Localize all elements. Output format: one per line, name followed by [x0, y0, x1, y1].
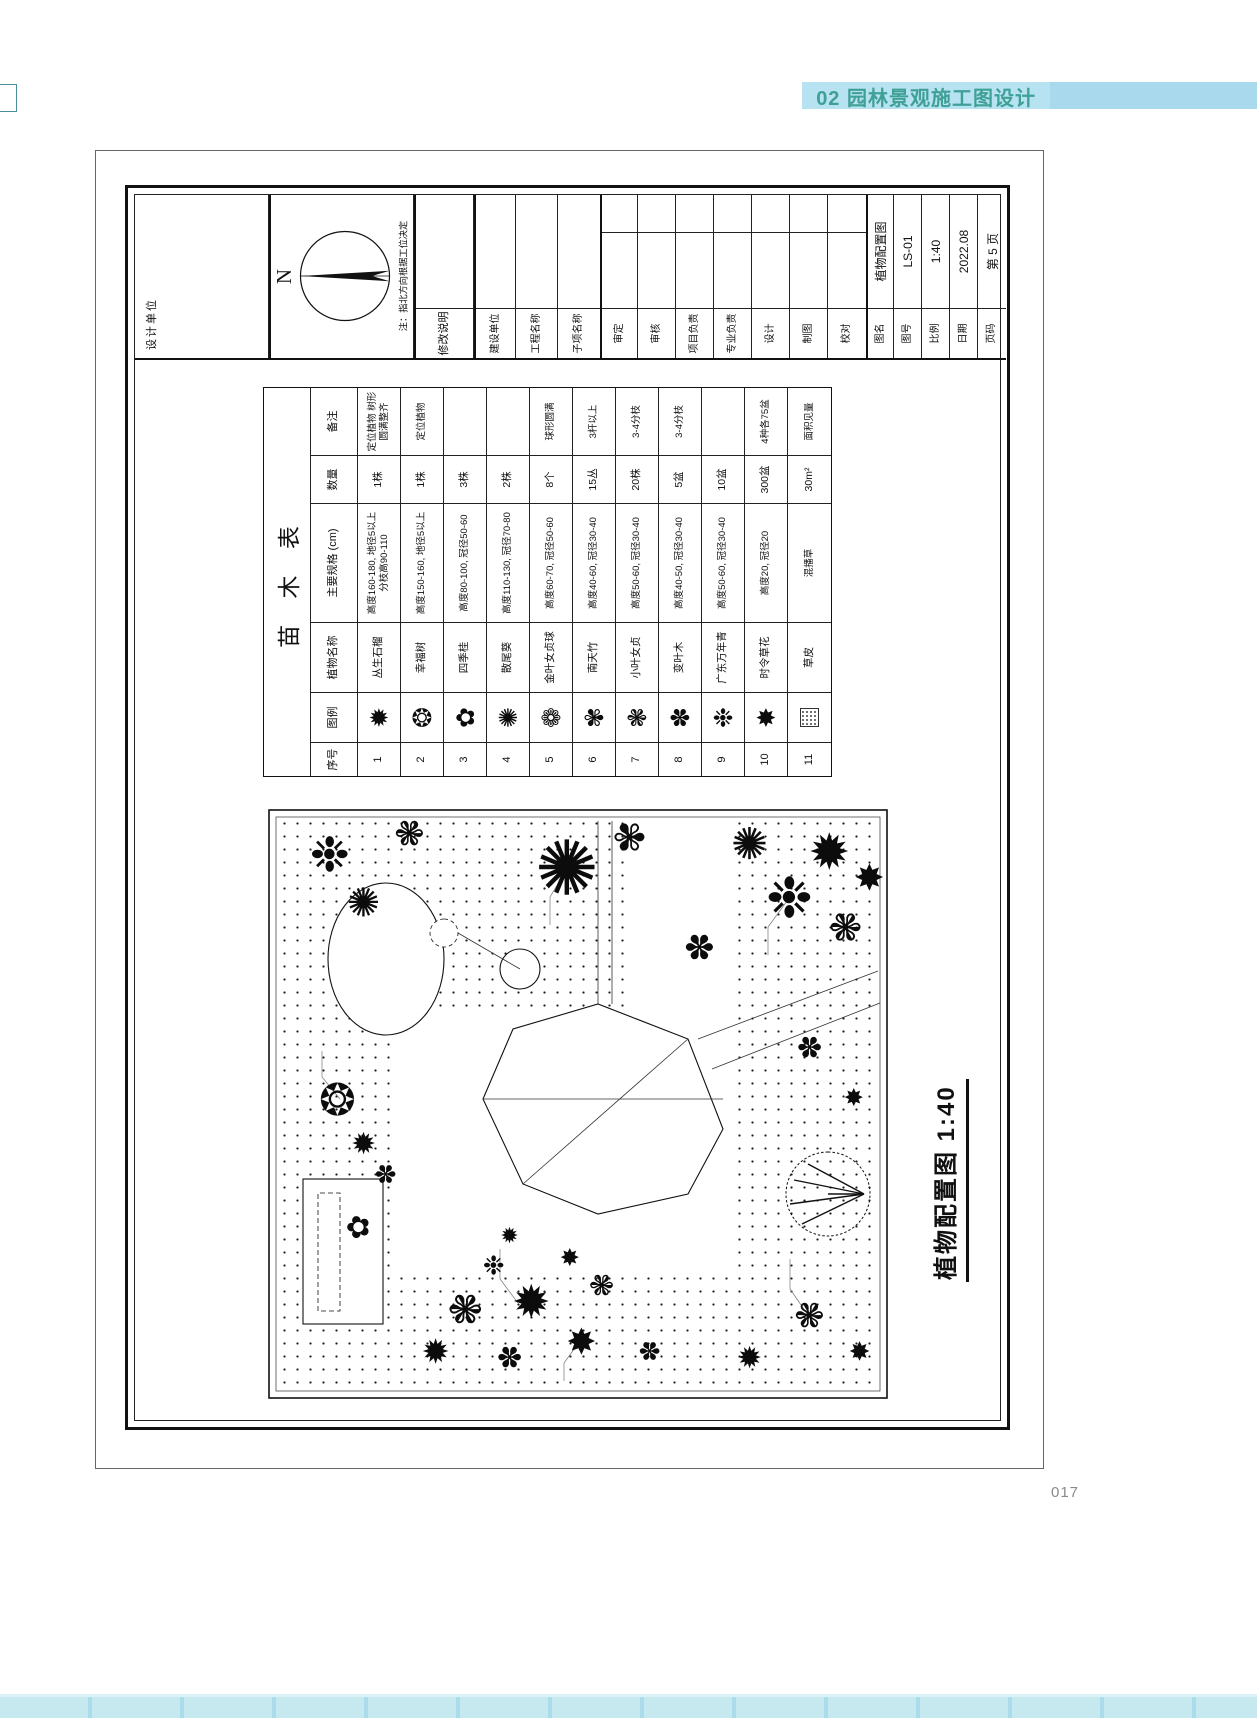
plant-no: 4	[487, 742, 529, 776]
turf-swatch-icon	[788, 692, 831, 742]
tree-symbol: ✾	[608, 820, 654, 854]
plant-qty: 10盆	[702, 455, 744, 503]
plant-table-body: 1✹丛生石榴高度160-180, 地径5以上 分枝高90-1101株定位植物 树…	[358, 388, 831, 776]
plant-name: 广东万年青	[702, 622, 744, 692]
design-unit-label: 设计单位	[143, 298, 159, 350]
title-block-row: 制图	[790, 195, 828, 358]
tree-symbol: ✹	[348, 1130, 383, 1155]
plant-row: 4✺散尾葵高度110-130, 冠径70-802株	[487, 388, 530, 776]
planting-plan: ✹❃✽✹✸❃✽✸✹❉✹❃✸✽✿❂✹❉✺❃✺✾✽❉✹❃✺✸✽✸	[268, 809, 893, 1399]
title-block-field-value: 植物配置图	[868, 195, 893, 308]
bottom-accent-band	[0, 1694, 1257, 1718]
evergreen-icon: ❉	[702, 692, 744, 742]
title-block-field-label: 审定	[602, 308, 637, 358]
tree-symbol: ✽	[636, 1340, 666, 1362]
tree-symbol: ✿	[342, 1214, 377, 1239]
plant-table-header-cell: 主要规格 (cm)	[311, 503, 357, 622]
tree-symbol: ❃	[824, 910, 870, 944]
title-block-field-value: 2022.08	[950, 195, 977, 308]
title-block-field-label: 子项名称	[558, 308, 600, 358]
clump-pomegranate-icon: ✹	[367, 707, 392, 728]
small-privet-icon: ❃	[616, 692, 658, 742]
plant-qty: 5盆	[659, 455, 701, 503]
tree-symbol: ✽	[794, 1034, 829, 1059]
title-block-field-subcell	[752, 233, 789, 271]
title-block-field-label: 日期	[950, 308, 977, 358]
drawing-sheet-landscape: 设计单位 N 注：指北方向根据工位决定 修改说明 建设单位工程名称子项名称 审定…	[125, 185, 1010, 1430]
title-block-field-subcell	[602, 233, 637, 271]
north-arrow-icon	[297, 229, 393, 325]
title-block-field-text: LS-01	[901, 235, 915, 267]
title-block-field-value	[638, 195, 675, 308]
plant-note	[487, 388, 529, 455]
croton-icon: ✽	[668, 707, 693, 728]
tree-symbol: ✽	[372, 1163, 402, 1185]
nandina-icon: ✾	[573, 692, 615, 742]
plant-note: 面积见量	[788, 388, 831, 455]
title-block-row: 项目负责	[676, 195, 714, 358]
plant-qty: 8个	[530, 455, 572, 503]
plant-no: 10	[745, 742, 787, 776]
title-block-field-label: 图号	[894, 308, 921, 358]
title-block-row: 设计	[752, 195, 790, 358]
tree-symbol: ❃	[391, 818, 432, 848]
plant-name: 变叶木	[659, 622, 701, 692]
plant-table-title: 苗 木 表	[264, 388, 311, 776]
croton-icon: ✽	[659, 692, 701, 742]
plant-table-header: 序号图例植物名称主要规格 (cm)数量备注	[311, 388, 358, 776]
plant-qty: 30m²	[788, 455, 831, 503]
title-block-row: 页码第 5 页	[978, 195, 1006, 358]
plant-note: 3-4分枝	[616, 388, 658, 455]
plant-note: 3杆以上	[573, 388, 615, 455]
revision-value	[416, 195, 473, 308]
title-block-field-label: 审核	[638, 308, 675, 358]
title-block-field-value: 第 5 页	[978, 195, 1006, 308]
title-block-row: 审核	[638, 195, 676, 358]
title-block-field-subcell	[714, 233, 751, 271]
plant-qty: 20株	[616, 455, 658, 503]
title-block-field-subcell	[828, 233, 866, 271]
tree-symbol: ✽	[681, 932, 722, 962]
title-block: 设计单位 N 注：指北方向根据工位决定 修改说明 建设单位工程名称子项名称 审定…	[135, 195, 1006, 360]
plant-row: 3✿四季桂高度80-100, 冠径50-603株	[444, 388, 487, 776]
plant-row: 1✹丛生石榴高度160-180, 地径5以上 分枝高90-1101株定位植物 树…	[358, 388, 401, 776]
title-block-row: 比例1:40	[922, 195, 950, 358]
north-note: 注：指北方向根据工位决定	[396, 221, 410, 331]
clump-pomegranate-icon: ✹	[358, 692, 400, 742]
title-block-field-value	[476, 195, 515, 308]
tree-symbol: ❉	[480, 1254, 510, 1276]
revision-cell: 修改说明	[414, 195, 474, 358]
title-block-row: 工程名称	[516, 195, 558, 358]
plant-table-header-cell: 备注	[311, 388, 357, 455]
title-block-row: 校对	[828, 195, 866, 358]
north-letter: N	[274, 269, 295, 284]
plant-no: 11	[788, 742, 831, 776]
plant-no: 5	[530, 742, 572, 776]
tree-symbol: ✽	[494, 1344, 529, 1369]
title-block-field-label: 设计	[752, 308, 789, 358]
plant-no: 2	[401, 742, 443, 776]
plant-name: 丛生石榴	[358, 622, 400, 692]
title-block-row: 图号LS-01	[894, 195, 922, 358]
title-block-field-subcell	[676, 233, 713, 271]
tree-symbol: ❃	[586, 1272, 621, 1297]
plant-spec: 混播草	[788, 503, 831, 622]
golden-privet-ball-icon: ❁	[530, 692, 572, 742]
chapter-title: 02 园林景观施工图设计	[802, 82, 1050, 109]
title-block-field-subcell	[638, 233, 675, 271]
plant-row: 5❁金叶女贞球高度60-70, 冠径50-608个球形圆满	[530, 388, 573, 776]
happiness-tree-icon: ❂	[401, 692, 443, 742]
plant-note: 定位植物 树形圆满整齐	[358, 388, 400, 455]
seasonal-flower-icon: ✸	[754, 707, 779, 728]
plant-no: 7	[616, 742, 658, 776]
tree-symbol: ✹	[499, 1226, 524, 1244]
title-block-field-label: 项目负责	[676, 308, 713, 358]
tree-symbol: ✹	[417, 1337, 457, 1366]
plan-caption: 植物配置图 1:40	[926, 1079, 969, 1282]
plant-name: 南天竹	[573, 622, 615, 692]
plant-spec: 高度40-50, 冠径30-40	[659, 503, 701, 622]
plant-table-header-cell: 数量	[311, 455, 357, 503]
golden-privet-ball-icon: ❁	[539, 707, 564, 728]
title-block-field-label: 建设单位	[476, 308, 515, 358]
plant-spec: 高度20, 冠径20	[745, 503, 787, 622]
plant-note: 球形圆满	[530, 388, 572, 455]
plant-name: 金叶女贞球	[530, 622, 572, 692]
plant-note: 4种各75盆	[745, 388, 787, 455]
title-block-row: 审定	[600, 195, 638, 358]
plant-qty: 2株	[487, 455, 529, 503]
plan-svg: ✹❃✽✹✸❃✽✸✹❉✹❃✸✽✿❂✹❉✺❃✺✾✽❉✹❃✺✸✽✸	[268, 809, 888, 1399]
plant-table-header-cell: 植物名称	[311, 622, 357, 692]
title-block-field-label: 专业负责	[714, 308, 751, 358]
plant-row: 7❃小叶女贞高度50-60, 冠径30-4020株3-4分枝	[616, 388, 659, 776]
chapter-accent-bar	[1050, 82, 1257, 109]
plant-no: 8	[659, 742, 701, 776]
tree-symbol: ✺	[524, 835, 613, 899]
title-block-field-label: 制图	[790, 308, 827, 358]
title-block-field-label: 图名	[868, 308, 893, 358]
title-block-field-value	[676, 195, 713, 308]
title-block-field-value: 1:40	[922, 195, 949, 308]
plant-name: 散尾葵	[487, 622, 529, 692]
page-number: 017	[1051, 1484, 1079, 1501]
tree-symbol: ✸	[846, 1340, 876, 1362]
title-block-field-text: 1:40	[929, 240, 943, 263]
turf-swatch-icon	[800, 708, 819, 727]
plant-note: 定位植物	[401, 388, 443, 455]
osmanthus-icon: ✿	[453, 707, 478, 728]
title-block-field-value	[714, 195, 751, 308]
happiness-tree-icon: ❂	[410, 707, 435, 728]
plant-row: 8✽变叶木高度40-50, 冠径30-405盆3-4分枝	[659, 388, 702, 776]
plant-name: 草皮	[788, 622, 831, 692]
osmanthus-icon: ✿	[444, 692, 486, 742]
plant-row: 10✸时令草花高度20, 冠径20300盆4种各75盆	[745, 388, 788, 776]
tree-symbol: ❃	[791, 1300, 832, 1330]
plant-row: 2❂幸福树高度150-160, 地径5以上1株定位植物	[401, 388, 444, 776]
title-block-field-label: 比例	[922, 308, 949, 358]
plant-qty: 300盆	[745, 455, 787, 503]
seasonal-flower-icon: ✸	[745, 692, 787, 742]
areca-palm-icon: ✺	[487, 692, 529, 742]
title-block-field-label: 校对	[828, 308, 866, 358]
title-block-field-text: 第 5 页	[984, 233, 1001, 270]
plant-qty: 1株	[358, 455, 400, 503]
plant-row: 11草皮混播草30m²面积见量	[788, 388, 831, 776]
tree-symbol: ❂	[313, 1081, 364, 1118]
tree-symbol: ✸	[840, 1087, 868, 1107]
plant-no: 6	[573, 742, 615, 776]
plant-no: 3	[444, 742, 486, 776]
design-unit-cell: 设计单位	[135, 195, 269, 358]
plant-spec: 高度60-70, 冠径50-60	[530, 503, 572, 622]
tree-symbol: ❉	[759, 874, 824, 921]
plant-row: 6✾南天竹高度40-60, 冠径30-4015丛3杆以上	[573, 388, 616, 776]
title-block-field-value	[558, 195, 600, 308]
plant-spec: 高度40-60, 冠径30-40	[573, 503, 615, 622]
plant-note: 3-4分枝	[659, 388, 701, 455]
tree-symbol: ✹	[734, 1344, 769, 1369]
plant-spec: 高度160-180, 地径5以上 分枝高90-110	[358, 503, 400, 622]
title-block-field-value	[828, 195, 866, 308]
plant-qty: 15丛	[573, 455, 615, 503]
plant-spec: 高度80-100, 冠径50-60	[444, 503, 486, 622]
title-block-row: 图名植物配置图	[866, 195, 894, 358]
title-block-field-subcell	[790, 233, 827, 271]
plant-name: 小叶女贞	[616, 622, 658, 692]
title-block-field-value	[516, 195, 557, 308]
title-block-field-text: 植物配置图	[872, 222, 889, 282]
drawing-sheet: 设计单位 N 注：指北方向根据工位决定 修改说明 建设单位工程名称子项名称 审定…	[125, 185, 1010, 1430]
plant-spec: 高度50-60, 冠径30-40	[702, 503, 744, 622]
tree-symbol: ✸	[851, 862, 888, 892]
tree-symbol: ✸	[556, 1247, 584, 1267]
chapter-header: 02 园林景观施工图设计	[0, 82, 1257, 109]
title-block-field-text: 2022.08	[957, 230, 971, 273]
plant-no: 9	[702, 742, 744, 776]
tree-symbol: ✸	[563, 1326, 604, 1356]
plant-name: 时令草花	[745, 622, 787, 692]
plant-no: 1	[358, 742, 400, 776]
small-privet-icon: ❃	[625, 707, 650, 728]
plant-name: 四季桂	[444, 622, 486, 692]
areca-palm-icon: ✺	[496, 707, 521, 728]
plant-schedule-table: 苗 木 表 序号图例植物名称主要规格 (cm)数量备注 1✹丛生石榴高度160-…	[263, 387, 832, 777]
revision-label: 修改说明	[416, 308, 473, 358]
title-block-row: 日期2022.08	[950, 195, 978, 358]
tree-symbol: ❉	[303, 834, 359, 874]
plant-spec: 高度50-60, 冠径30-40	[616, 503, 658, 622]
plant-qty: 1株	[401, 455, 443, 503]
title-block-field-label: 工程名称	[516, 308, 557, 358]
plant-spec: 高度110-130, 冠径70-80	[487, 503, 529, 622]
plant-note	[444, 388, 486, 455]
tree-symbol: ✺	[342, 885, 388, 919]
title-block-field-value	[752, 195, 789, 308]
plant-qty: 3株	[444, 455, 486, 503]
tree-symbol: ✹	[505, 1282, 559, 1321]
tree-symbol: ✺	[725, 825, 776, 862]
title-block-row: 建设单位	[474, 195, 516, 358]
tree-symbol: ❃	[442, 1291, 491, 1326]
plant-spec: 高度150-160, 地径5以上	[401, 503, 443, 622]
title-block-row: 专业负责	[714, 195, 752, 358]
north-arrow-cell: N 注：指北方向根据工位决定	[269, 195, 414, 358]
plant-name: 幸福树	[401, 622, 443, 692]
evergreen-icon: ❉	[711, 707, 736, 728]
plant-note	[702, 388, 744, 455]
plant-table-header-cell: 序号	[311, 742, 357, 776]
title-block-field-value	[602, 195, 637, 308]
title-block-row: 子项名称	[558, 195, 600, 358]
margin-marker	[0, 84, 17, 112]
plant-row: 9❉广东万年青高度50-60, 冠径30-4010盆	[702, 388, 745, 776]
plant-table-header-cell: 图例	[311, 692, 357, 742]
title-block-field-value	[790, 195, 827, 308]
title-block-field-label: 页码	[978, 308, 1006, 358]
nandina-icon: ✾	[582, 707, 607, 728]
title-block-field-value: LS-01	[894, 195, 921, 308]
